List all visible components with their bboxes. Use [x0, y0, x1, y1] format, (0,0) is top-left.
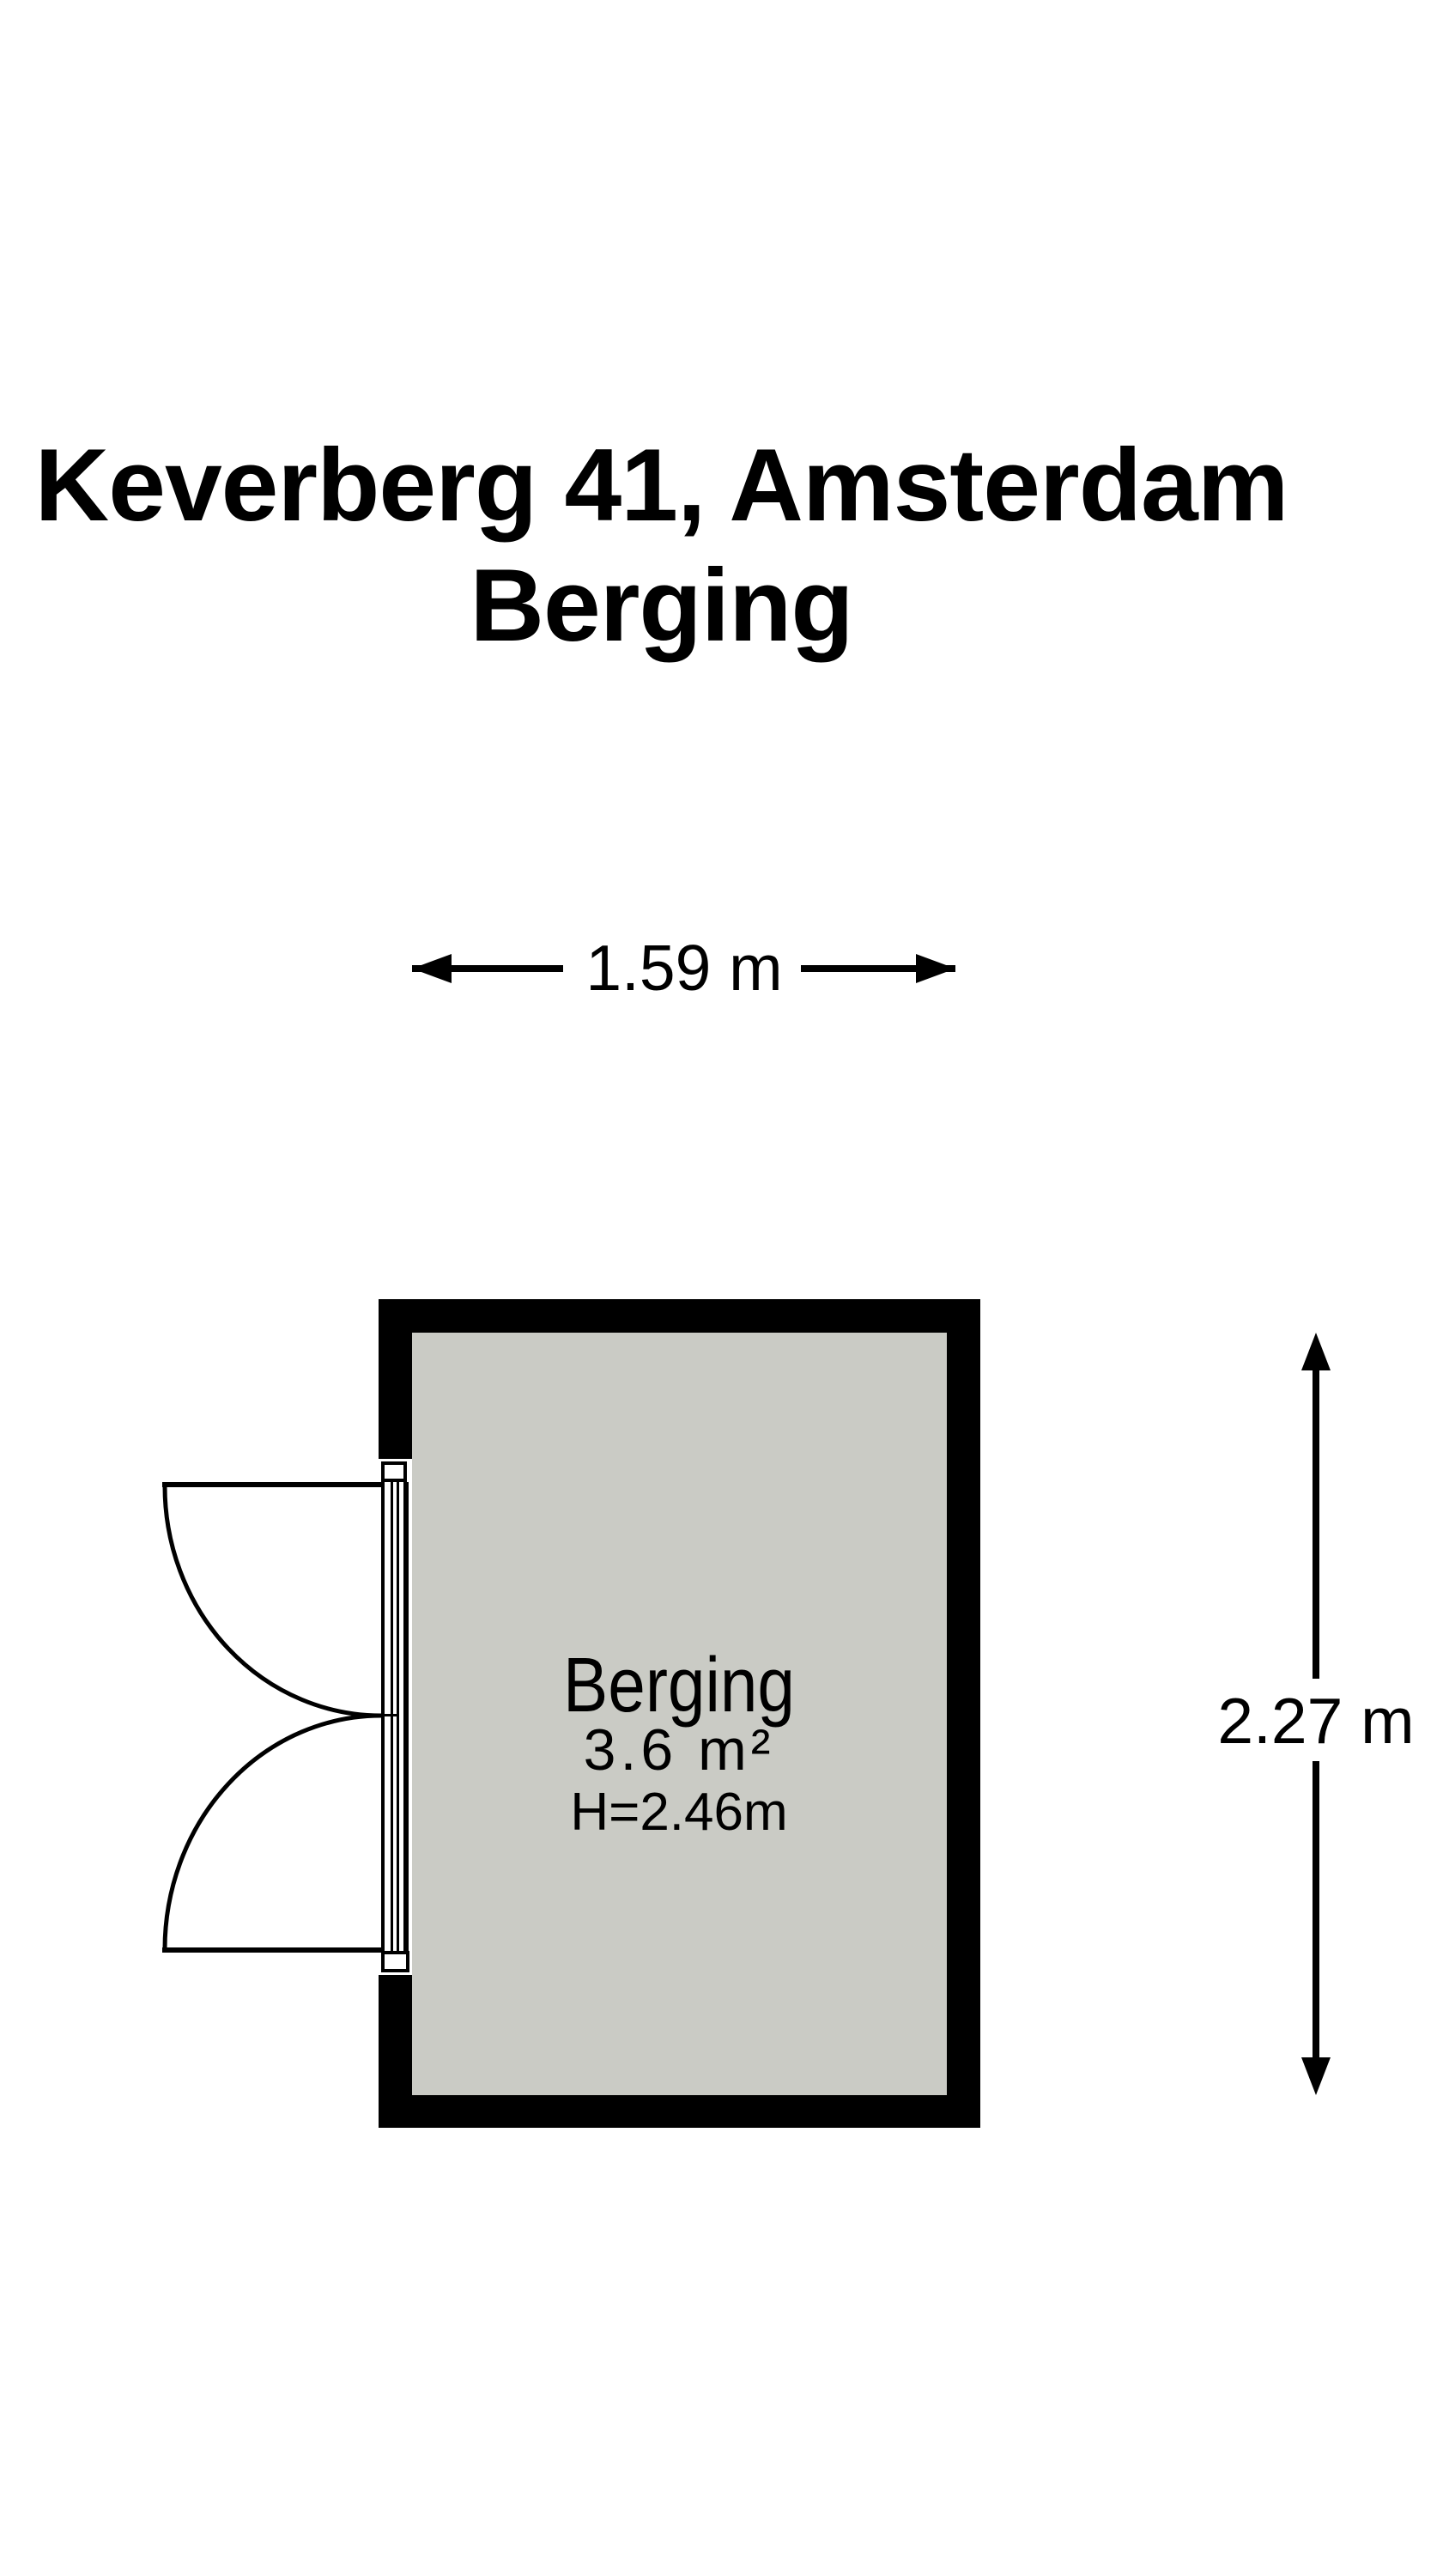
floorplan-page: Keverberg 41, Amsterdam Berging 1.59 m B… — [0, 0, 1449, 2576]
room-name-label: Berging — [380, 1647, 978, 1724]
title-line-address: Keverberg 41, Amsterdam — [0, 425, 1323, 545]
arrow-up-icon — [1301, 1333, 1331, 1370]
room-area-label: 3.6 m² — [336, 1721, 1022, 1779]
height-dimension-line-top — [1313, 1369, 1319, 1679]
room-height-label: H=2.46m — [336, 1786, 1022, 1839]
door-swing-arcs — [0, 0, 1449, 2576]
door-swing-arc-top — [165, 1486, 381, 1716]
door-leaf-bottom — [162, 1947, 381, 1953]
height-dimension-line-bottom — [1313, 1761, 1319, 2057]
width-dimension-label: 1.59 m — [555, 936, 813, 1000]
height-dimension-label: 2.27 m — [1187, 1689, 1445, 1753]
door-leaf-top — [162, 1482, 381, 1487]
arrow-right-icon — [916, 954, 955, 983]
arrow-down-icon — [1301, 2057, 1331, 2095]
title-line-room: Berging — [0, 545, 1323, 665]
page-title: Keverberg 41, Amsterdam Berging — [0, 425, 1323, 665]
door-frame-bottom — [381, 1951, 409, 1972]
arrow-left-icon — [412, 954, 452, 983]
door-frame-top — [381, 1461, 407, 1482]
